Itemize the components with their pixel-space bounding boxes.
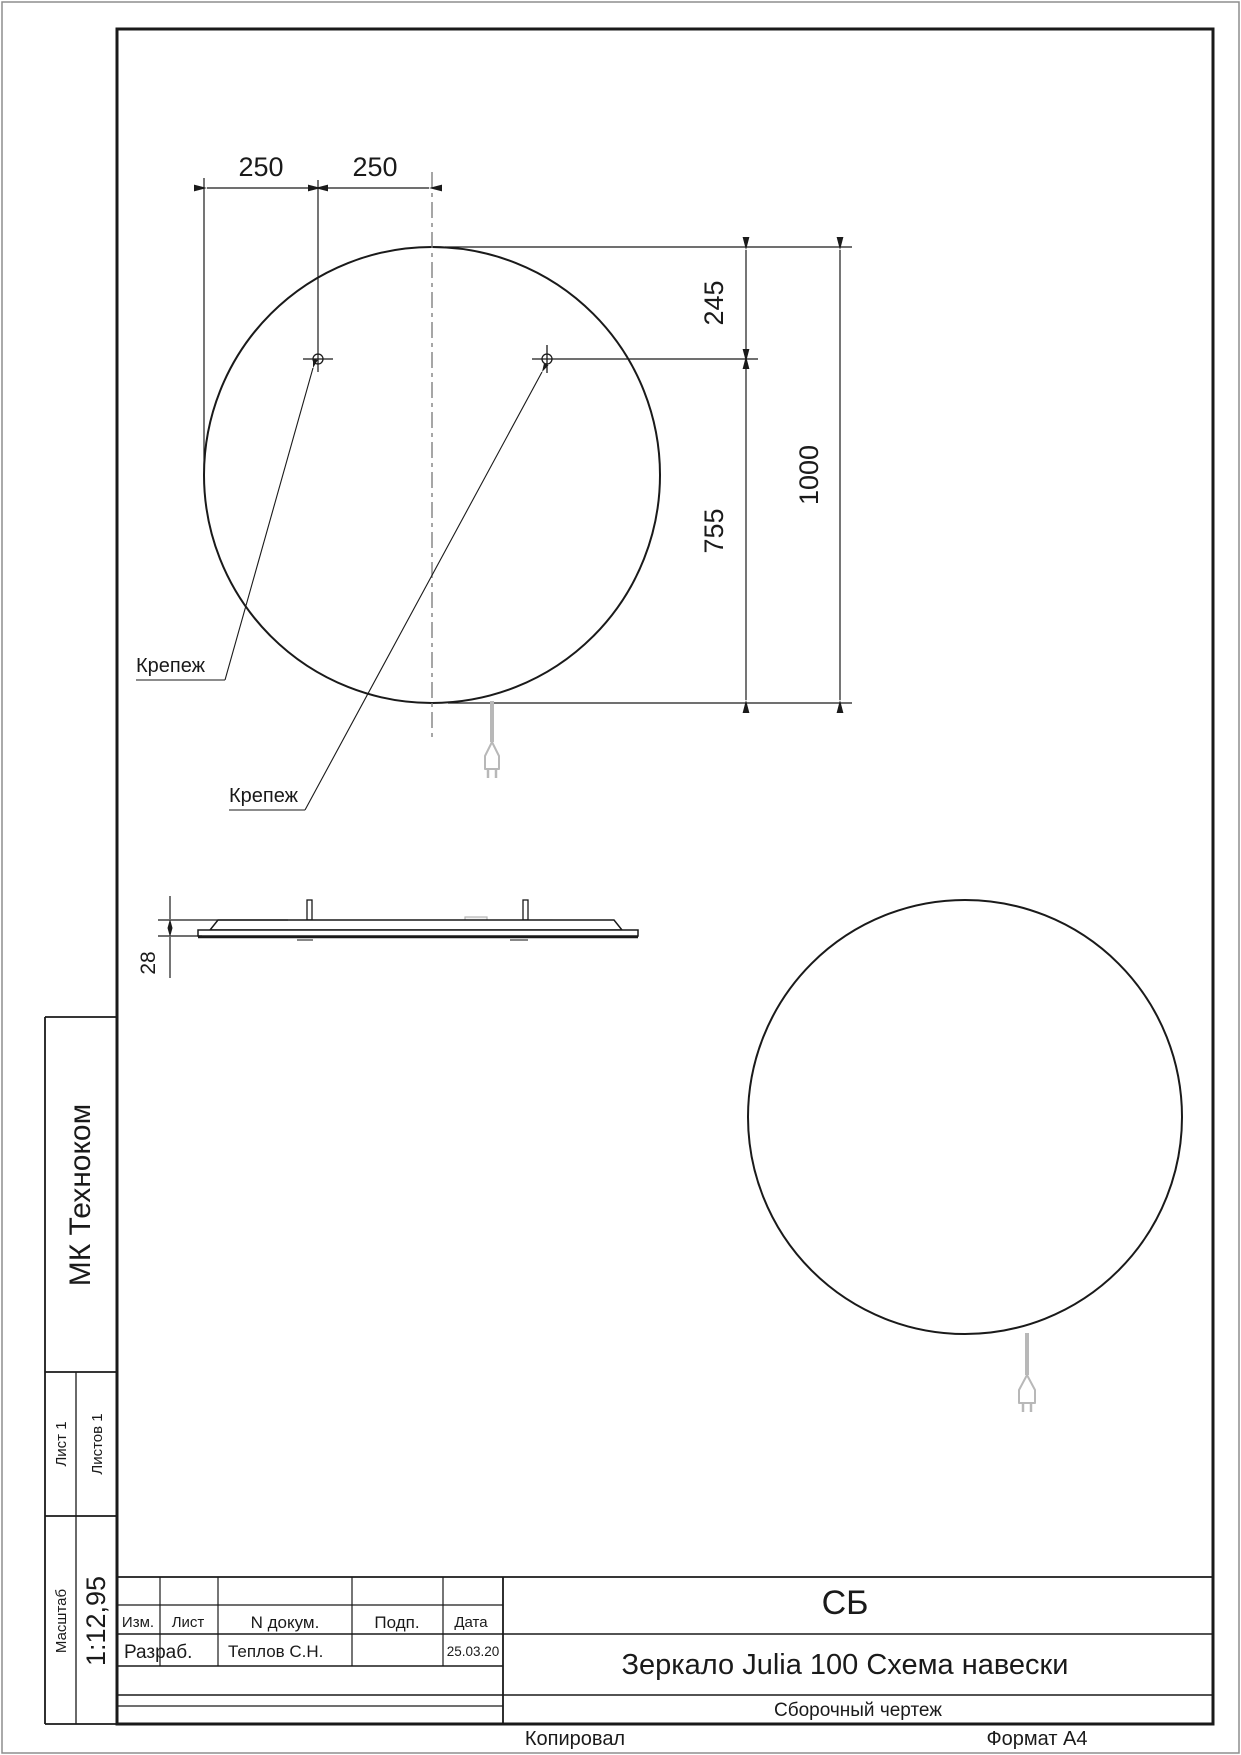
- header-data: Дата: [454, 1614, 488, 1631]
- fastener-label-1: Крепеж: [136, 655, 206, 677]
- header-podp: Подп.: [374, 1613, 419, 1632]
- row-name: Теплов С.Н.: [228, 1642, 323, 1661]
- header-ndoc: N докум.: [251, 1613, 320, 1632]
- power-plug-icon-2: [1019, 1333, 1035, 1412]
- drawing-subtitle: Сборочный чертеж: [774, 1700, 942, 1721]
- front-view: [136, 172, 852, 810]
- side-view: [158, 896, 638, 978]
- dim-250-right: 250: [352, 152, 397, 182]
- page-border: [2, 2, 1239, 1753]
- drawing-title: Зеркало Julia 100 Схема навески: [622, 1649, 1069, 1681]
- dim-755: 755: [699, 508, 729, 553]
- company-name: МК Техноком: [64, 1104, 97, 1287]
- dim-28: 28: [137, 951, 160, 974]
- dimension-lines: [207, 188, 840, 700]
- row-role: Разраб.: [124, 1642, 192, 1663]
- sheets-total: Листов 1: [89, 1413, 106, 1474]
- drawing-frame: [117, 29, 1213, 1724]
- leader-lines: [136, 368, 542, 810]
- header-list: Лист: [172, 1614, 205, 1631]
- doc-type: СБ: [822, 1584, 869, 1622]
- header-izm: Изм.: [122, 1614, 154, 1631]
- scale-value: 1:12,95: [81, 1576, 111, 1666]
- back-view: [748, 900, 1182, 1412]
- mirror-back-circle: [748, 900, 1182, 1334]
- fastener-label-2: Крепеж: [229, 785, 299, 807]
- side-mirror-plate: [198, 930, 638, 936]
- scale-label: Масштаб: [53, 1589, 70, 1653]
- dim-1000: 1000: [794, 445, 824, 505]
- drawing-canvas: 250 250 245 755 1000 Крепеж Крепеж 28: [0, 0, 1241, 1755]
- footer-format: Формат А4: [986, 1728, 1087, 1750]
- dim-245: 245: [699, 280, 729, 325]
- footer-copied: Копировал: [525, 1728, 625, 1750]
- dim-250-left: 250: [238, 152, 283, 182]
- sheet-number: Лист 1: [53, 1421, 70, 1466]
- extension-lines: [204, 178, 852, 703]
- row-date: 25.03.20: [447, 1644, 500, 1659]
- power-plug-icon: [485, 701, 499, 778]
- drawing-sheet: 250 250 245 755 1000 Крепеж Крепеж 28: [0, 0, 1241, 1755]
- side-pin-right: [523, 900, 528, 920]
- side-backing-plate: [210, 920, 622, 930]
- side-pin-left: [307, 900, 312, 920]
